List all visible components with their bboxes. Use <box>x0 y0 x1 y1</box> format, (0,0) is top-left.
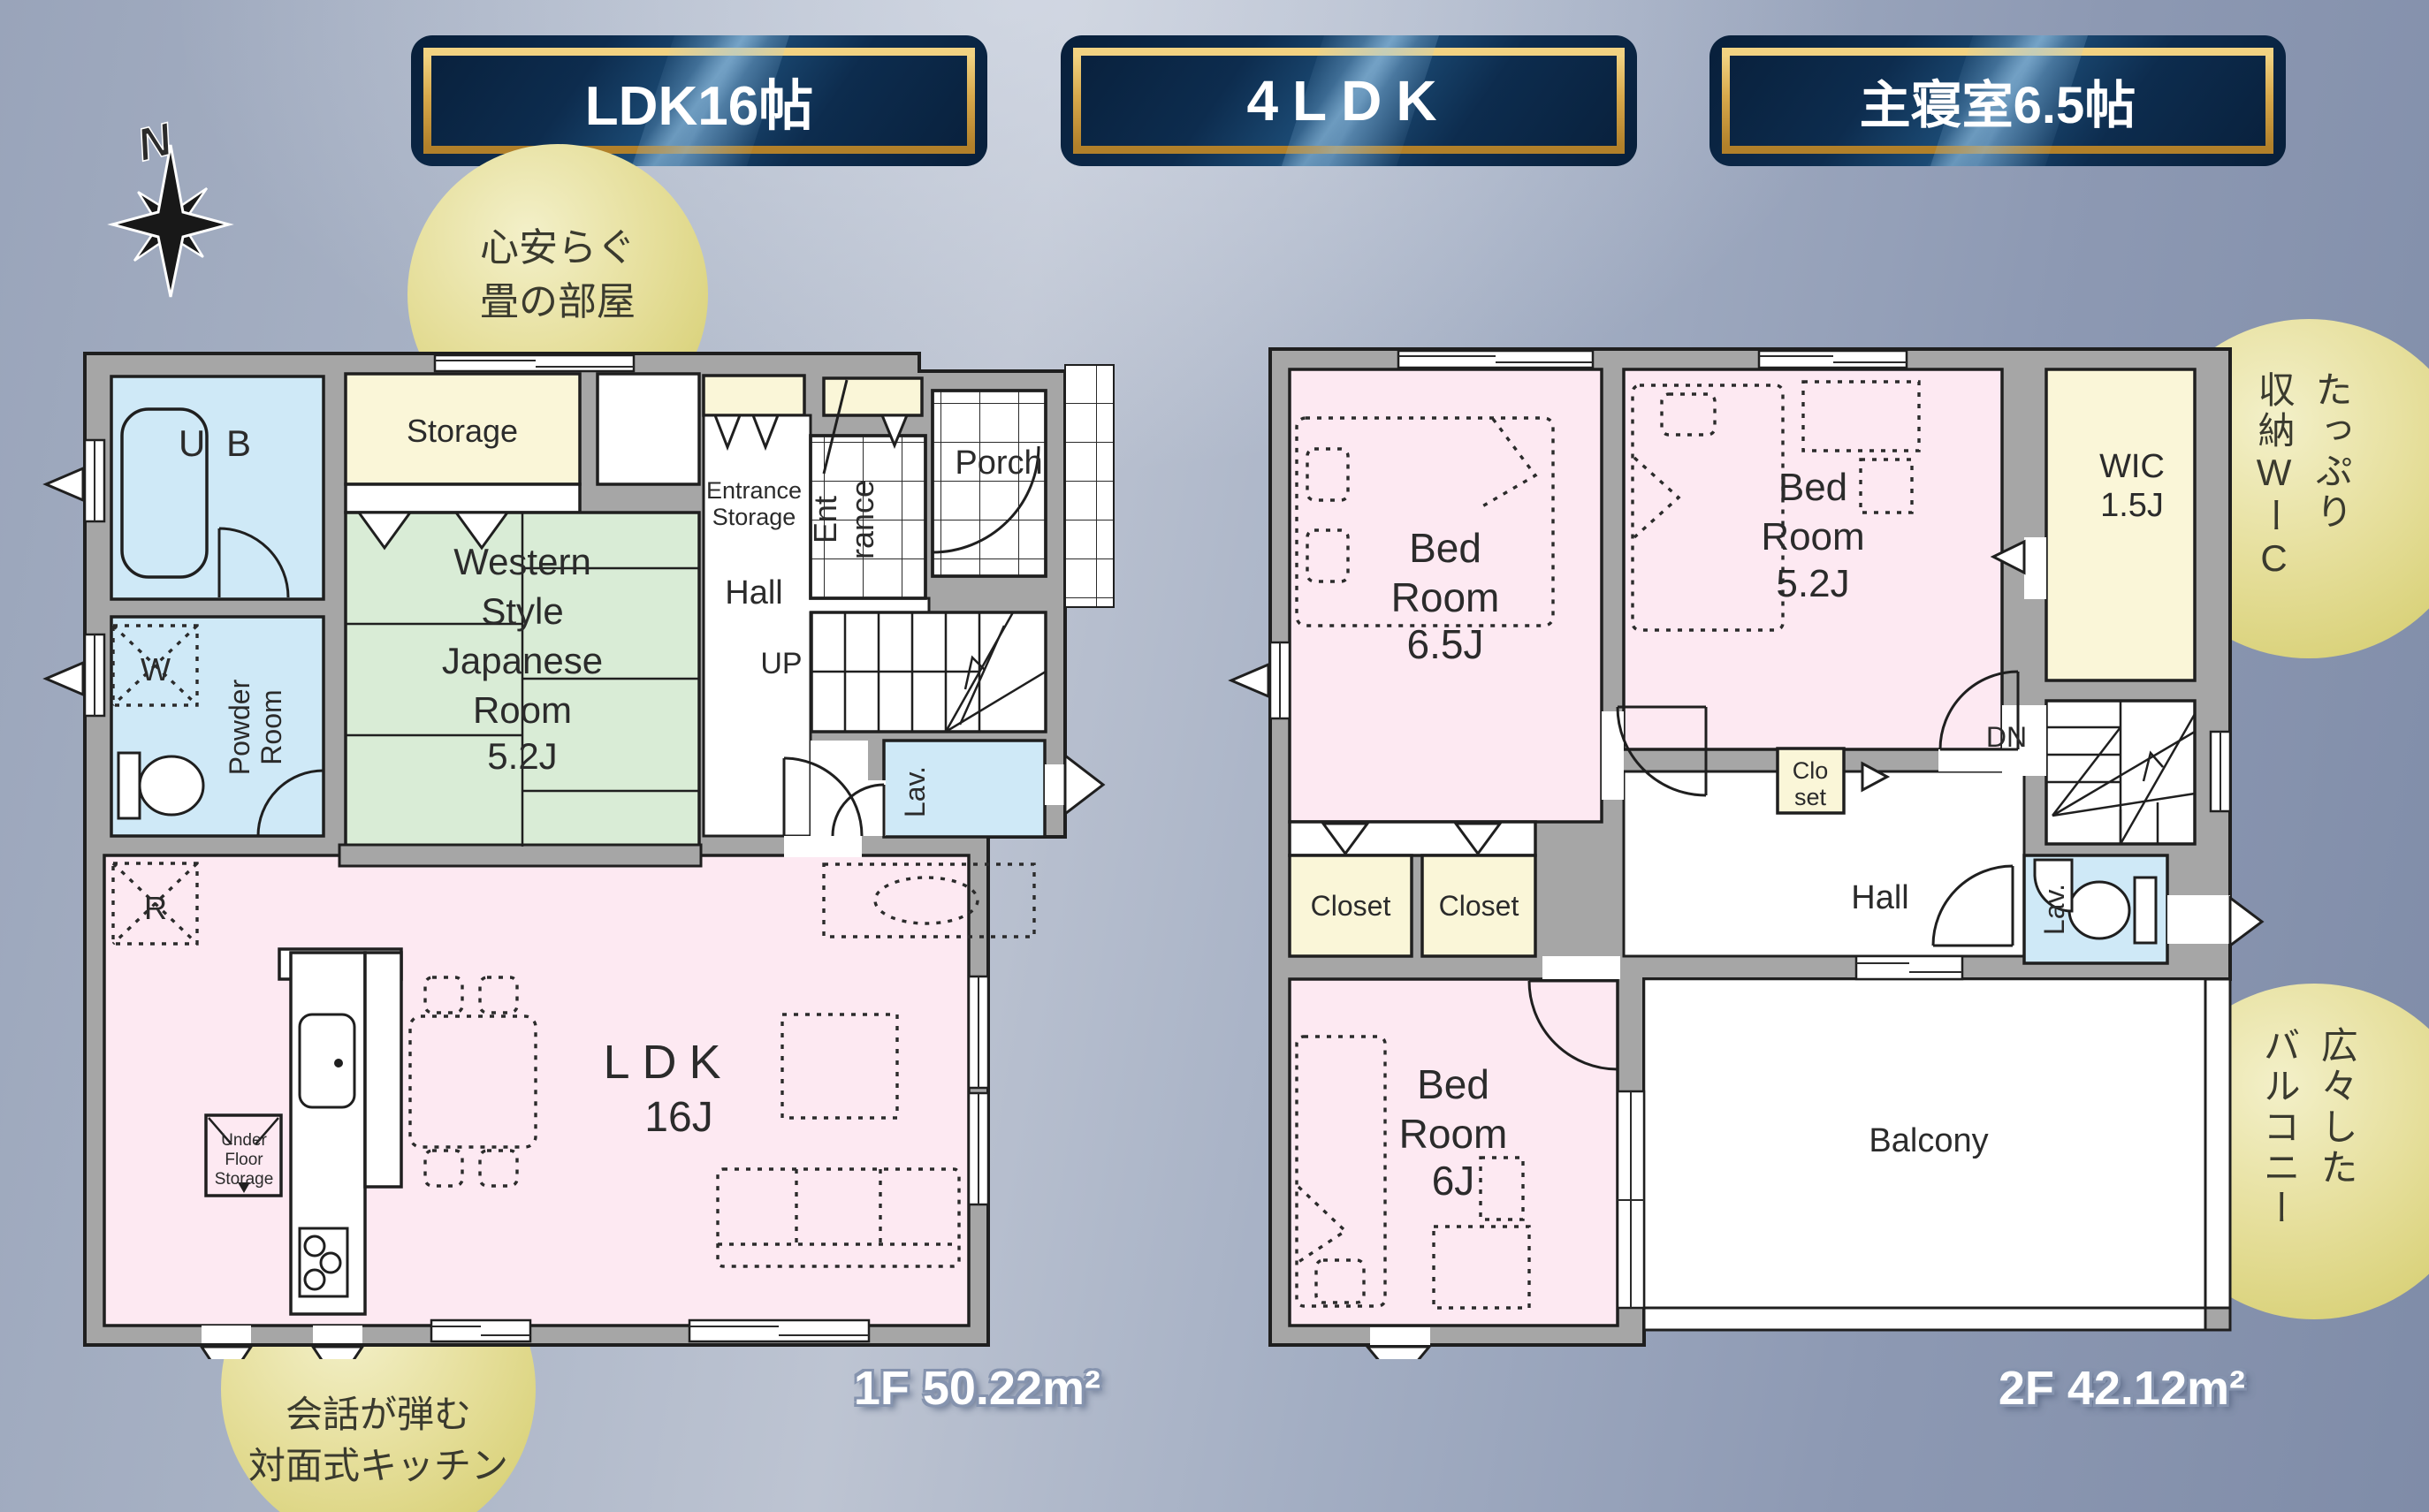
label-fridge: R <box>144 890 167 926</box>
label-bed6-2: Room <box>1399 1111 1508 1157</box>
floor2-plan: Bed Room 6.5J Bed Room 5.2J WIC 1.5J Clo… <box>1217 325 2296 1359</box>
label-dn: DN <box>1986 721 2027 753</box>
badge-master: 主寝室6.5帖 <box>1709 35 2286 166</box>
floor1-area-label: 1F 50.22m² <box>844 1361 1100 1416</box>
label-bed65-2: Room <box>1391 574 1500 620</box>
label-entstor-1: Entrance <box>706 477 802 504</box>
callout-tatami-line1: 心安らぐ <box>407 222 708 276</box>
label-bed6-3: 6J <box>1432 1158 1475 1204</box>
label-powder-2: Room <box>255 689 287 764</box>
label-closet1: Closet <box>1311 890 1391 922</box>
compass-rose-icon: N <box>93 115 252 300</box>
callout-kitchen-line1: 会話が弾む <box>221 1389 536 1440</box>
callout-tatami-line2: 畳の部屋 <box>407 276 708 330</box>
callout-kitchen-line2: 対面式キッチン <box>221 1440 536 1492</box>
badge-4ldk-label: 4LDK <box>1246 68 1451 133</box>
label-lav1f: Lav. <box>899 766 931 817</box>
label-powder-1: Powder <box>224 679 255 775</box>
label-ufs-3: Storage <box>215 1170 274 1189</box>
label-closet-s-2: set <box>1794 784 1827 810</box>
label-bed65-3: 6.5J <box>1407 621 1484 667</box>
toilet-tank-1f <box>118 753 140 818</box>
compass-n-label: N <box>133 115 179 171</box>
balcony-rail-right <box>2205 979 2230 1308</box>
room-bed52 <box>1624 369 2002 749</box>
porch-outer-tiles <box>1065 365 1114 607</box>
badge-4ldk: 4LDK <box>1061 35 1637 166</box>
label-wic-1: WIC <box>2099 448 2165 485</box>
jroom-closet <box>598 374 699 484</box>
label-jroom-4: Room <box>473 689 572 731</box>
wall-under-jroom <box>339 845 701 866</box>
label-closet2: Closet <box>1439 890 1519 922</box>
label-jroom-3: Japanese <box>442 640 603 681</box>
label-bed65-1: Bed <box>1409 525 1481 571</box>
badge-master-label: 主寝室6.5帖 <box>1860 64 2136 138</box>
label-entstor-2: Storage <box>712 504 796 530</box>
label-balcony: Balcony <box>1869 1122 1988 1159</box>
toilet-tank-2f <box>2135 878 2156 943</box>
label-jroom-1: Western <box>453 541 591 582</box>
label-entrance-1: Ent <box>807 496 843 543</box>
label-storage: Storage <box>407 413 518 449</box>
kitchen-bar <box>365 953 401 1187</box>
floorplan-flyer: LDK16帖 4LDK 主寝室6.5帖 N 心安らぐ 畳の部屋 会話が弾む 対面… <box>0 0 2429 1512</box>
label-jroom-5: 5.2J <box>487 735 557 777</box>
badge-ldk: LDK16帖 <box>411 35 987 166</box>
door-gap-lav2f <box>2167 895 2230 944</box>
label-closet-s-1: Clo <box>1793 757 1829 784</box>
room-wic <box>2046 369 2195 680</box>
label-wic-2: 1.5J <box>2100 487 2164 524</box>
label-lav2f: Lav. <box>2038 884 2070 935</box>
door-gap-bed6 <box>1542 956 1620 979</box>
callout-balcony-col1: 広々した <box>2308 1026 2365 1300</box>
label-hall1f: Hall <box>725 574 782 612</box>
kitchen-cabinet <box>291 953 365 1314</box>
room-powder <box>111 617 324 836</box>
label-jroom-2: Style <box>481 590 563 632</box>
floor2-area-label: 2F 42.12m² <box>1980 1361 2245 1416</box>
balcony-rail-bottom <box>1644 1308 2230 1330</box>
label-bed6-1: Bed <box>1417 1061 1489 1107</box>
door-gap-wic <box>2024 537 2046 599</box>
label-washer: W <box>141 651 171 688</box>
label-hall2f: Hall <box>1851 879 1908 916</box>
label-bed52-3: 5.2J <box>1776 562 1849 605</box>
label-bed52-1: Bed <box>1778 466 1847 509</box>
label-up: UP <box>760 647 802 680</box>
balcony-rail-corner <box>2205 1308 2230 1330</box>
label-ufs-2: Floor <box>225 1151 263 1169</box>
label-ub: U B <box>179 422 256 464</box>
badge-ldk-label: LDK16帖 <box>585 61 813 141</box>
porch-tiles <box>933 391 1046 576</box>
toilet-bowl-2f <box>2069 882 2129 938</box>
door-gap-hall-ldk <box>784 836 862 857</box>
entrance-storage-a <box>704 376 804 415</box>
label-ldk-size: 16J <box>644 1094 712 1141</box>
callout-wic-col1: たっぷり <box>2303 370 2360 635</box>
floor1-plan: U B Storage Entrance Storage Ent rance P… <box>32 325 1146 1359</box>
label-porch: Porch <box>955 444 1042 482</box>
closet-front-strip <box>346 484 580 513</box>
toilet-bowl-1f <box>140 756 203 815</box>
label-entrance-2: rance <box>844 480 880 559</box>
label-bed52-2: Room <box>1761 515 1864 558</box>
kitchen-faucet <box>334 1059 343 1068</box>
label-ldk: LDK <box>603 1036 733 1089</box>
label-ufs-1: Under <box>221 1131 267 1150</box>
